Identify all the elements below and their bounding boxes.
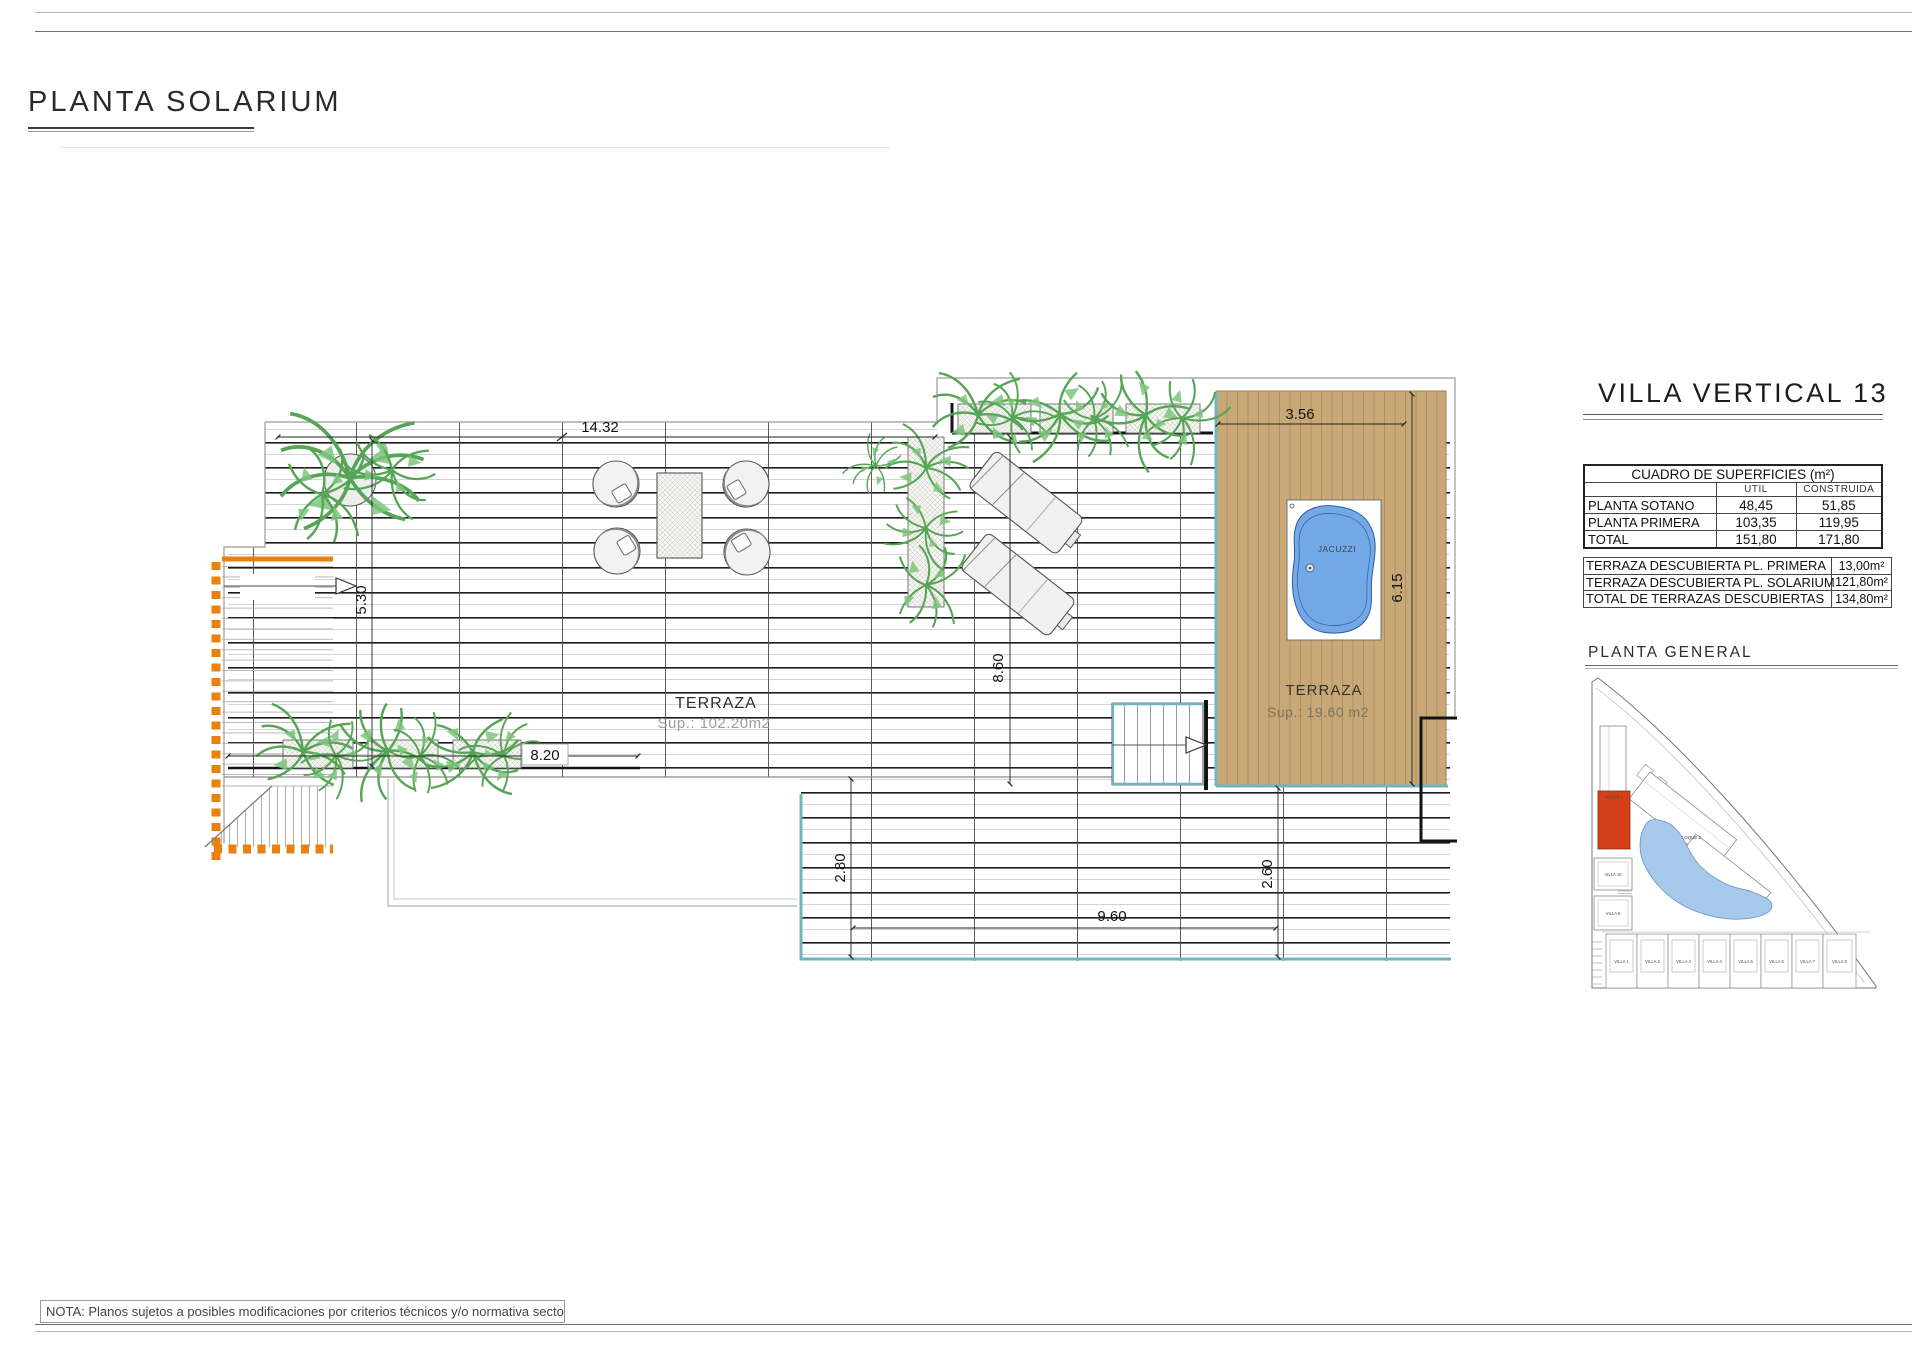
dim-top-width: 14.32: [581, 419, 619, 436]
terraces-table: TERRAZA DESCUBIERTA PL. PRIMERA 13,00m² …: [1583, 557, 1892, 608]
surfaces-table-header-row: UTIL CONSTRUIDA: [1584, 483, 1882, 497]
terraza-deck-label: TERRAZA: [1285, 682, 1362, 699]
surfaces-row-construida: 51,85: [1796, 497, 1882, 514]
table: [657, 473, 702, 558]
site-villa-row: VILLA 1 VILLA 2 VILLA 3 VILLA 4 VILLA 5 …: [1606, 934, 1856, 988]
surfaces-table-title-row: CUADRO DE SUPERFICIES (m²): [1584, 465, 1882, 483]
site-villa6-label: VILLA 6: [1769, 959, 1784, 964]
table-row: PLANTA PRIMERA 103,35 119,95: [1584, 514, 1882, 531]
dim-deck-height: 6.15: [1389, 573, 1406, 602]
surfaces-row-construida: 171,80: [1796, 531, 1882, 549]
surfaces-row-construida: 119,95: [1796, 514, 1882, 531]
surfaces-row-label: PLANTA PRIMERA: [1584, 514, 1716, 531]
site-villa3-label: VILLA 3: [1676, 959, 1691, 964]
dim-lower-right-height: 2.60: [1259, 859, 1276, 888]
villa-title-underline-2: [1583, 419, 1883, 420]
floor-plan-drawing: JACUZZI 14.32 3.56 5.30 6.15 8.60 8.20 2…: [0, 0, 1920, 1356]
planta-general-underline: [1585, 665, 1898, 666]
dim-lower-left-height: 2.80: [832, 853, 849, 882]
table-row: TOTAL DE TERRAZAS DESCUBIERTAS 134,80m²: [1584, 591, 1892, 608]
dim-lower-width: 9.60: [1097, 908, 1126, 925]
surfaces-table: CUADRO DE SUPERFICIES (m²) UTIL CONSTRUI…: [1583, 464, 1883, 549]
sheet-border-bottom-outer: [35, 1331, 1912, 1332]
table-row: TOTAL 151,80 171,80: [1584, 531, 1882, 549]
villa-title-underline: [1583, 414, 1883, 415]
planta-general-title: PLANTA GENERAL: [1588, 644, 1753, 662]
site-plan: BLOQUE 1 BLOQUE 2 VILLA 10 VILLA 9: [1592, 678, 1876, 988]
villa-title: VILLA VERTICAL 13: [1598, 378, 1888, 409]
dim-left-height: 5.30: [353, 585, 370, 614]
terrace-row-value: 134,80m²: [1832, 591, 1892, 608]
terraza-deck-area: Sup.: 19.60 m2: [1267, 704, 1369, 720]
jacuzzi: JACUZZI: [1287, 500, 1381, 640]
surfaces-row-util: 151,80: [1716, 531, 1796, 549]
surfaces-col-empty: [1584, 483, 1716, 497]
site-villa2-label: VILLA 2: [1645, 959, 1660, 964]
table-row: TERRAZA DESCUBIERTA PL. SOLARIUM 121,80m…: [1584, 574, 1892, 591]
drawing-sheet: PLANTA SOLARIUM: [0, 0, 1920, 1356]
jacuzzi-label: JACUZZI: [1318, 544, 1356, 554]
surfaces-row-label: TOTAL: [1584, 531, 1716, 549]
stairs-lower: [1112, 703, 1206, 785]
terrace-row-value: 121,80m²: [1832, 574, 1892, 591]
site-bloque1-label: BLOQUE 1: [1606, 795, 1623, 799]
surfaces-col-construida: CONSTRUIDA: [1796, 483, 1882, 497]
terrace-row-label: TERRAZA DESCUBIERTA PL. SOLARIUM: [1584, 574, 1832, 591]
surfaces-table-title: CUADRO DE SUPERFICIES (m²): [1584, 465, 1882, 483]
terrace-row-value: 13,00m²: [1832, 558, 1892, 575]
table-row: PLANTA SOTANO 48,45 51,85: [1584, 497, 1882, 514]
site-villa1-label: VILLA 1: [1614, 959, 1629, 964]
terraza-main-area: Sup.: 102.20m2: [658, 715, 771, 732]
dim-deck-width: 3.56: [1285, 406, 1314, 423]
surfaces-row-label: PLANTA SOTANO: [1584, 497, 1716, 514]
site-bloque1-highlighted: [1598, 791, 1630, 849]
terrace-row-label: TERRAZA DESCUBIERTA PL. PRIMERA: [1584, 558, 1832, 575]
note-box: NOTA: Planos sujetos a posibles modifica…: [40, 1300, 565, 1323]
site-villa7-label: VILLA 7: [1800, 959, 1815, 964]
site-villa8-label: VILLA 8: [1832, 959, 1847, 964]
planta-general-underline-2: [1585, 668, 1898, 669]
sheet-border-bottom-inner: [35, 1324, 1912, 1325]
dim-planter-width: 8.20: [530, 747, 559, 764]
site-villa4-label: VILLA 4: [1707, 959, 1722, 964]
surfaces-row-util: 48,45: [1716, 497, 1796, 514]
terraza-main-label: TERRAZA: [675, 695, 757, 712]
terrace-row-label: TOTAL DE TERRAZAS DESCUBIERTAS: [1584, 591, 1832, 608]
site-villa5-label: VILLA 5: [1738, 959, 1753, 964]
dim-mid-height: 8.60: [990, 653, 1007, 682]
table-row: TERRAZA DESCUBIERTA PL. PRIMERA 13,00m²: [1584, 558, 1892, 575]
site-villa9-label: VILLA 9: [1606, 911, 1621, 916]
surfaces-col-util: UTIL: [1716, 483, 1796, 497]
surfaces-row-util: 103,35: [1716, 514, 1796, 531]
site-villa10-label: VILLA 10: [1605, 872, 1623, 877]
